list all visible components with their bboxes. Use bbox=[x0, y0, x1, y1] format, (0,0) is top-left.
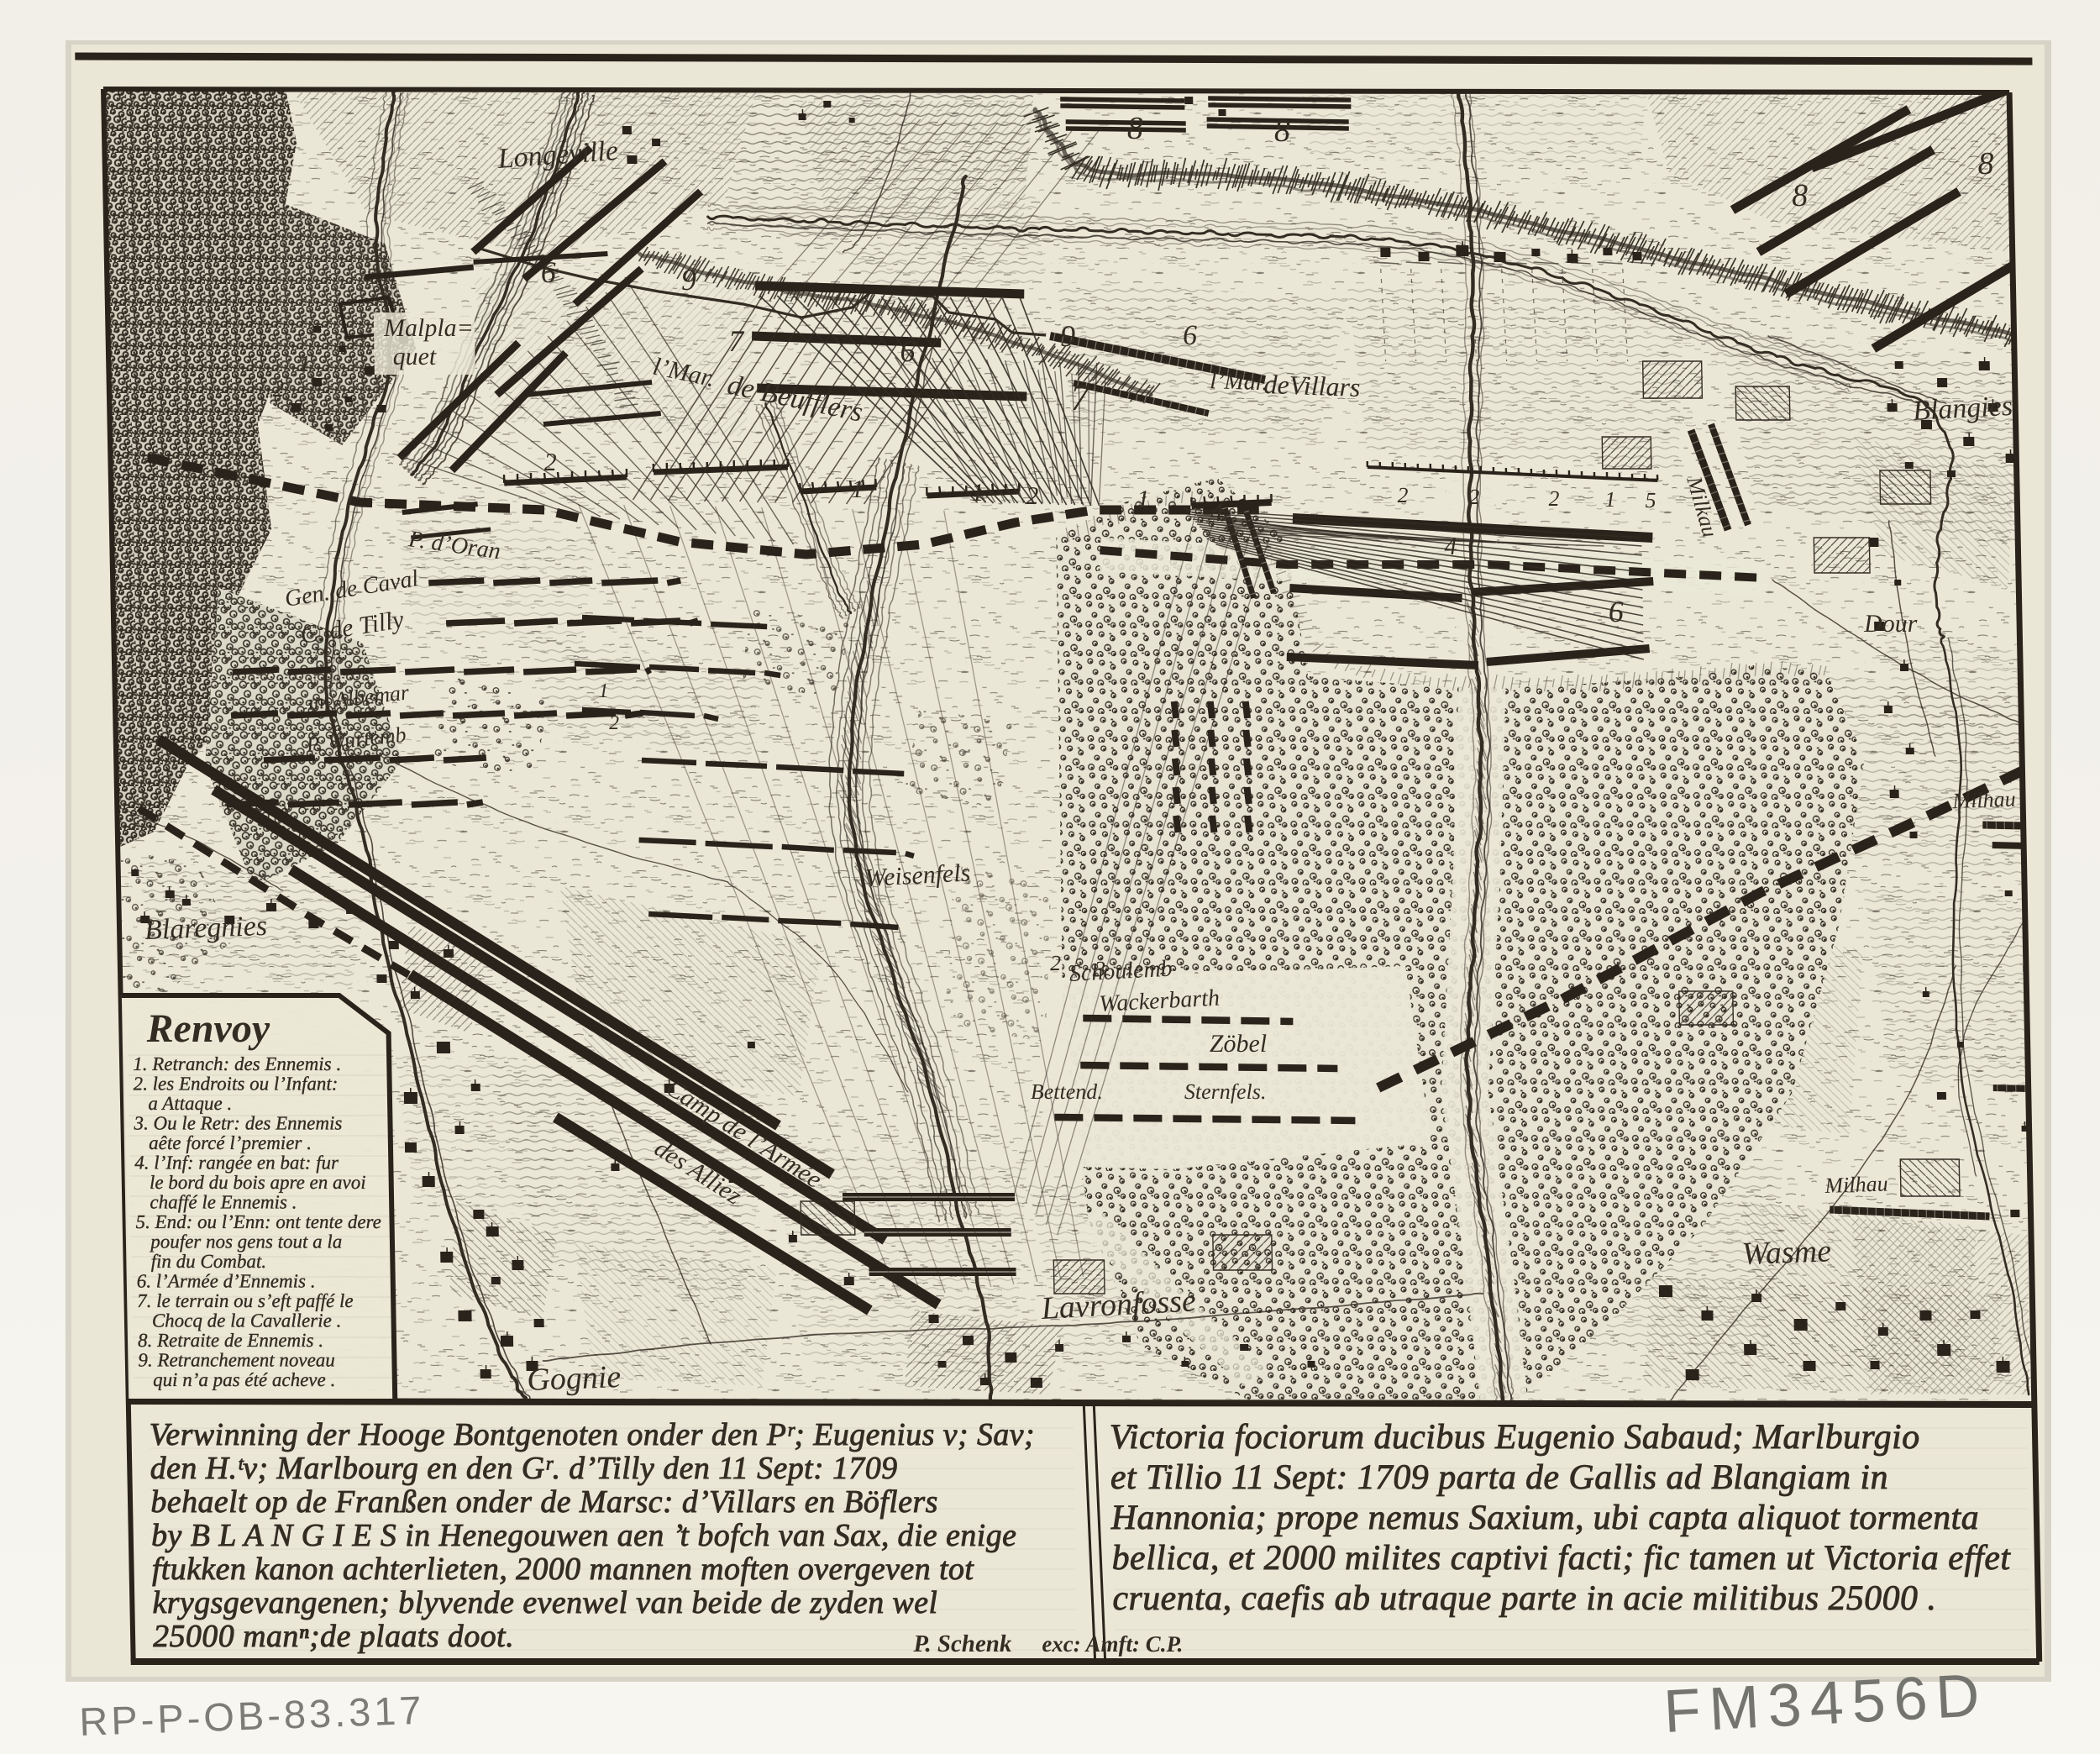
svg-text:5: 5 bbox=[1645, 488, 1656, 512]
svg-text:1: 1 bbox=[298, 351, 311, 377]
svg-text:Milhau: Milhau bbox=[1824, 1171, 1889, 1198]
svg-text:by B L A N G I E S in Henegou: by B L A N G I E S in Henegouwen aen ’t … bbox=[151, 1518, 1017, 1553]
svg-text:2: 2 bbox=[543, 449, 557, 476]
svg-text:2: 2 bbox=[1050, 951, 1062, 975]
svg-text:1: 1 bbox=[851, 475, 864, 503]
svg-text:1: 1 bbox=[971, 479, 984, 507]
svg-text:4. l’Inf: rangée en bat: fur: 4. l’Inf: rangée en bat: fur bbox=[134, 1153, 339, 1174]
svg-text:chaffé le Ennemis .: chaffé le Ennemis . bbox=[135, 1192, 297, 1213]
svg-text:2: 2 bbox=[272, 376, 285, 402]
svg-text:Chocq de la Cavallerie .: Chocq de la Cavallerie . bbox=[137, 1310, 341, 1331]
svg-text:Blangies: Blangies bbox=[1912, 391, 2013, 427]
svg-text:Blaregnies: Blaregnies bbox=[144, 911, 268, 946]
svg-text:Malpla=: Malpla= bbox=[383, 314, 474, 342]
svg-text:9: 9 bbox=[681, 263, 697, 297]
svg-text:Dour: Dour bbox=[1863, 610, 1918, 638]
svg-text:Sternfels.: Sternfels. bbox=[1184, 1079, 1267, 1104]
svg-text:2: 2 bbox=[1548, 486, 1560, 511]
svg-text:6: 6 bbox=[540, 255, 556, 289]
svg-text:7: 7 bbox=[728, 324, 746, 358]
svg-text:Renvoy: Renvoy bbox=[145, 1006, 270, 1051]
svg-text:1: 1 bbox=[598, 680, 608, 702]
svg-text:quet: quet bbox=[392, 343, 437, 370]
svg-text:2: 2 bbox=[609, 712, 619, 734]
svg-text:a Attaque .: a Attaque . bbox=[134, 1093, 233, 1114]
svg-text:4: 4 bbox=[1210, 499, 1224, 527]
svg-text:krygsgevangenen; blyvende even: krygsgevangenen; blyvende evenwel van be… bbox=[152, 1585, 938, 1620]
svg-text:6. l’Armée d’Ennemis .: 6. l’Armée d’Ennemis . bbox=[137, 1271, 316, 1292]
svg-text:2. les Endroits ou l’Infant:: 2. les Endroits ou l’Infant: bbox=[133, 1074, 338, 1095]
svg-text:behaelt op de Franßen onder de: behaelt op de Franßen onder de Marsc: d’… bbox=[150, 1484, 938, 1520]
svg-text:P. Schenk: P. Schenk bbox=[912, 1631, 1012, 1657]
svg-text:Bettend.: Bettend. bbox=[1031, 1079, 1103, 1104]
svg-text:25000 manⁿ;de plaats doot.: 25000 manⁿ;de plaats doot. bbox=[153, 1619, 514, 1654]
svg-text:8: 8 bbox=[1977, 146, 1994, 181]
svg-text:8. Retraite de Ennemis .: 8. Retraite de Ennemis . bbox=[138, 1330, 323, 1351]
svg-text:6: 6 bbox=[900, 334, 916, 368]
svg-text:fin du Combat.: fin du Combat. bbox=[136, 1251, 266, 1272]
svg-text:1. Retranch: des Ennemis .: 1. Retranch: des Ennemis . bbox=[133, 1053, 341, 1074]
svg-text:Zöbel: Zöbel bbox=[1210, 1030, 1268, 1058]
svg-text:poufer nos gens tout a la: poufer nos gens tout a la bbox=[136, 1231, 343, 1252]
svg-text:Milhau: Milhau bbox=[1951, 786, 2017, 813]
svg-text:Verwinning der Hooge Bontgenot: Verwinning der Hooge Bontgenoten onder d… bbox=[150, 1417, 1036, 1452]
svg-text:exc: Amft: C.P.: exc: Amft: C.P. bbox=[1042, 1631, 1183, 1657]
svg-text:Schoulemb: Schoulemb bbox=[1068, 956, 1173, 987]
svg-text:9: 9 bbox=[1060, 319, 1076, 353]
svg-text:Victoria fociorum ducibus Euge: Victoria fociorum ducibus Eugenio Sabaud… bbox=[1110, 1418, 1920, 1457]
svg-text:1: 1 bbox=[1137, 486, 1150, 513]
svg-text:8: 8 bbox=[1274, 113, 1291, 149]
svg-text:8: 8 bbox=[1126, 111, 1143, 146]
svg-text:2: 2 bbox=[1397, 483, 1409, 507]
svg-text:deVillars: deVillars bbox=[1263, 369, 1361, 402]
svg-text:4: 4 bbox=[1444, 533, 1457, 560]
svg-text:2: 2 bbox=[1026, 482, 1039, 510]
svg-text:6: 6 bbox=[1609, 595, 1625, 628]
svg-text:le bord du bois apre en avoi: le bord du bois apre en avoi bbox=[134, 1172, 365, 1193]
svg-text:cruenta, caefis ab utraque par: cruenta, caefis ab utraque parte in acie… bbox=[1112, 1579, 1937, 1618]
svg-text:9. Retranchement noveau: 9. Retranchement noveau bbox=[138, 1350, 335, 1371]
svg-text:qui n’a pas été acheve .: qui n’a pas été acheve . bbox=[139, 1369, 336, 1390]
svg-text:7. le terrain ou s’eft paffé l: 7. le terrain ou s’eft paffé le bbox=[137, 1290, 354, 1311]
svg-text:Weisenfels: Weisenfels bbox=[864, 859, 972, 892]
svg-text:bellica, et 2000 milites capti: bellica, et 2000 milites captivi facti; … bbox=[1111, 1539, 2012, 1578]
svg-text:1: 1 bbox=[1604, 487, 1616, 512]
svg-text:8: 8 bbox=[1792, 178, 1809, 213]
svg-text:l’Mar.: l’Mar. bbox=[1210, 368, 1268, 396]
svg-text:2: 2 bbox=[1468, 485, 1480, 509]
svg-text:et Tillio 11 Sept: 1709 parta: et Tillio 11 Sept: 1709 parta de Gallis … bbox=[1110, 1458, 1888, 1497]
svg-text:Gognie: Gognie bbox=[526, 1359, 622, 1398]
svg-text:3: 3 bbox=[1094, 957, 1106, 981]
svg-text:5. End: ou l’Enn: ont tente de: 5. End: ou l’Enn: ont tente dere bbox=[135, 1211, 381, 1232]
svg-text:Hannonia; prope nemus Saxium,: Hannonia; prope nemus Saxium, ubi capta … bbox=[1110, 1499, 1979, 1537]
svg-text:Wasme: Wasme bbox=[1741, 1233, 1832, 1272]
svg-text:6: 6 bbox=[1183, 320, 1198, 351]
svg-text:7: 7 bbox=[1070, 377, 1091, 418]
